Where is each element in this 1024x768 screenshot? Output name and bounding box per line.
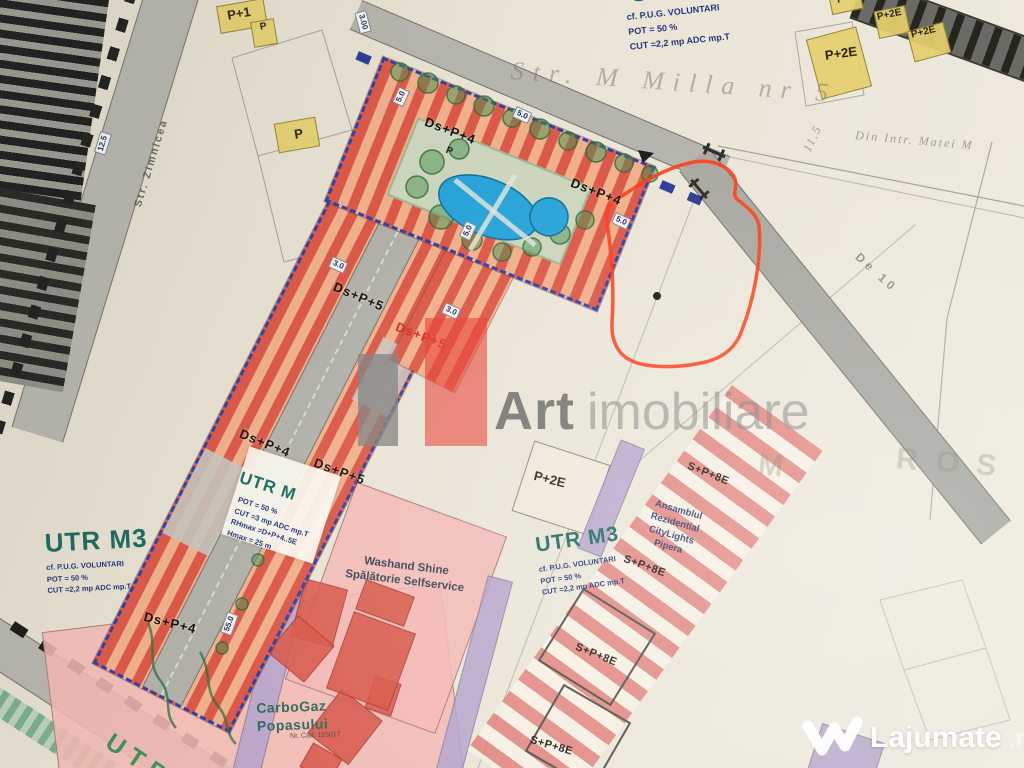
lajumate-tld: .ro <box>1008 723 1024 754</box>
watermark-bar-red <box>425 318 487 446</box>
road-arrow-marker <box>638 150 654 163</box>
zoning-map-photo: P+1PPP+2EP+2EP+2EP+2EUTR M3cf. P.U.G. VO… <box>0 0 1024 768</box>
lajumate-name: Lajumate <box>870 721 1002 755</box>
map-features <box>0 0 1024 768</box>
vegetation-scribble-1 <box>148 622 176 728</box>
utility-pole-1 <box>701 142 728 163</box>
red-plot-outline <box>607 161 760 366</box>
lajumate-w-icon <box>800 714 864 762</box>
watermark-bar-gray <box>358 354 398 446</box>
lajumate-logo: Lajumate .ro <box>800 714 1024 762</box>
plot-center-dot <box>653 292 661 300</box>
utility-pole-2 <box>687 176 712 202</box>
vegetation-scribble-2 <box>200 652 236 744</box>
